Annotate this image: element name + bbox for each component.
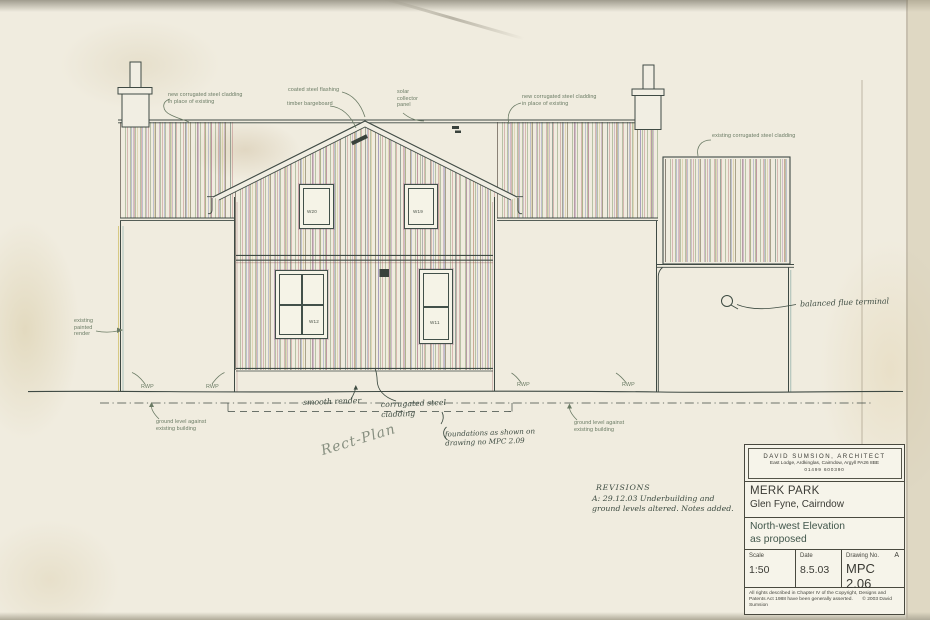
window-panes bbox=[423, 273, 449, 340]
existing-block-outline bbox=[657, 157, 794, 392]
architect-address: East Lodge, Ardkinglas, Cairndow, Argyll… bbox=[770, 461, 879, 466]
copyright-box: All rights described in Chapter IV of th… bbox=[745, 587, 904, 614]
date-label: Date bbox=[800, 553, 837, 559]
drawing-number-label: Drawing No. bbox=[846, 553, 900, 559]
window-sash bbox=[303, 188, 330, 225]
window-w20: W20 bbox=[299, 184, 334, 229]
revision-letter: A bbox=[894, 552, 899, 559]
window-label: W19 bbox=[413, 209, 423, 214]
note-timber-bargeboard: timber bargeboard bbox=[287, 101, 333, 108]
note-rwp: RWP bbox=[206, 384, 219, 391]
window-label: W11 bbox=[430, 320, 440, 325]
window-w12: W12 bbox=[275, 270, 328, 339]
sheet-title-line2: as proposed bbox=[750, 534, 899, 547]
project-location: Glen Fyne, Cairndow bbox=[750, 499, 899, 510]
note-solar-panel: solar collector panel bbox=[397, 89, 418, 109]
chimney-right bbox=[632, 65, 664, 130]
scale-label: Scale bbox=[749, 553, 791, 559]
sheet-title-line1: North-west Elevation bbox=[750, 521, 899, 534]
scanned-elevation-sheet: W20 W19 W12 W11 new corrugated steel cla… bbox=[0, 0, 930, 620]
note-new-cladding-left: new corrugated steel cladding in place o… bbox=[168, 92, 243, 105]
date-value: 8.5.03 bbox=[800, 564, 837, 576]
architect-box: DAVID SUMSION, ARCHITECT East Lodge, Ard… bbox=[745, 445, 904, 481]
drawing-number-value: MPC 2.06 bbox=[846, 561, 900, 591]
project-name: MERK PARK bbox=[750, 485, 899, 497]
vent bbox=[380, 269, 390, 277]
ground-line bbox=[28, 391, 903, 392]
note-smooth-render: smooth render bbox=[303, 396, 361, 408]
note-rwp: RWP bbox=[141, 384, 154, 391]
scale-cell: Scale 1:50 bbox=[745, 550, 795, 587]
note-foundations: foundations as shown on drawing no MPC 2… bbox=[445, 426, 536, 447]
window-w19: W19 bbox=[404, 184, 438, 229]
note-coated-flashing: coated steel flashing bbox=[288, 87, 339, 94]
window-panes bbox=[279, 274, 324, 335]
revisions-entry: A: 29.12.03 Underbuilding and ground lev… bbox=[592, 494, 734, 513]
window-label: W12 bbox=[309, 319, 319, 324]
sheet-meta-row: Scale 1:50 Date 8.5.03 Drawing No. A MPC… bbox=[745, 549, 904, 587]
architect-phone: 01499 600390 bbox=[804, 468, 844, 473]
date-cell: Date 8.5.03 bbox=[795, 550, 841, 587]
project-box: MERK PARK Glen Fyne, Cairndow bbox=[745, 481, 904, 517]
balanced-flue-symbol bbox=[722, 296, 739, 310]
note-rwp: RWP bbox=[517, 382, 530, 389]
note-ground-level-right: ground level against existing building bbox=[574, 420, 624, 433]
sheet-title-box: North-west Elevation as proposed bbox=[745, 517, 904, 549]
architect-name: DAVID SUMSION, ARCHITECT bbox=[763, 453, 885, 460]
window-sash bbox=[408, 188, 434, 225]
window-label: W20 bbox=[307, 209, 317, 214]
note-new-cladding-right: new corrugated steel cladding in place o… bbox=[522, 94, 597, 107]
note-corrugated-cladding: corrugated steel cladding bbox=[381, 398, 447, 419]
note-ground-level-left: ground level against existing building bbox=[156, 419, 206, 432]
window-w11: W11 bbox=[419, 269, 453, 344]
note-existing-render: existing painted render bbox=[74, 318, 93, 338]
note-existing-cladding: existing corrugated steel cladding bbox=[712, 133, 795, 140]
title-block: DAVID SUMSION, ARCHITECT East Lodge, Ard… bbox=[744, 444, 905, 615]
revisions-title: REVISIONS bbox=[596, 483, 650, 493]
note-rwp: RWP bbox=[622, 382, 635, 389]
scale-value: 1:50 bbox=[749, 564, 791, 576]
drawing-number-cell: Drawing No. A MPC 2.06 bbox=[841, 550, 904, 587]
chimney-left bbox=[118, 62, 152, 127]
